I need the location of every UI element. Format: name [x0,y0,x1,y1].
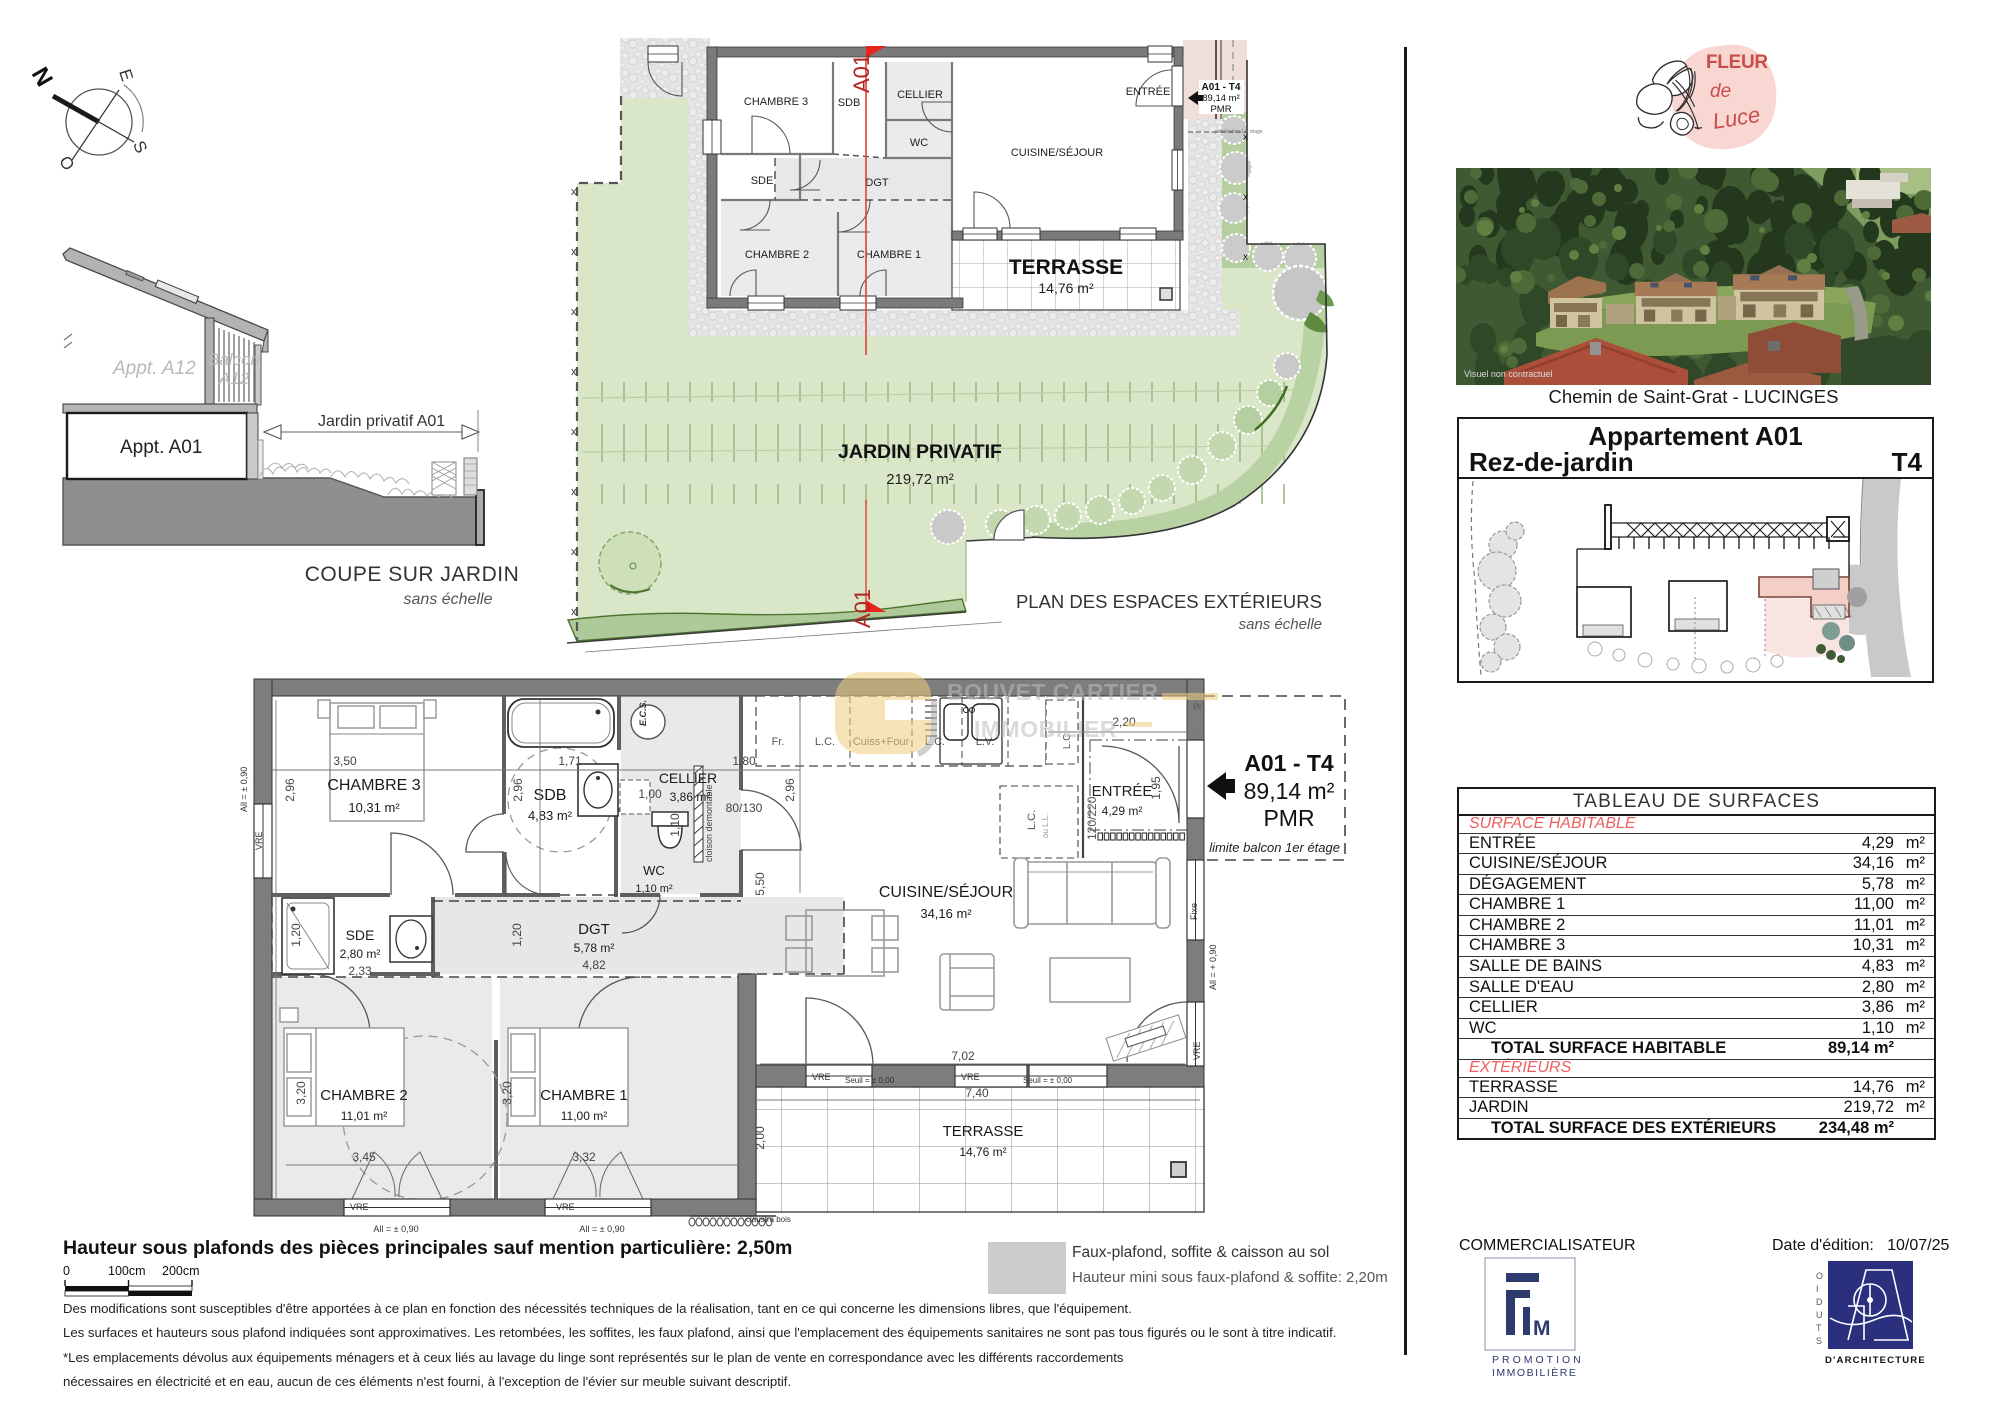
svg-text:1,00: 1,00 [638,787,662,801]
svg-text:N: N [26,63,58,92]
svg-text:ENTRÉE: ENTRÉE [1126,85,1171,98]
svg-text:5,50: 5,50 [753,872,767,896]
svg-text:L.C.: L.C. [1026,810,1038,830]
svg-text:2,96: 2,96 [783,778,797,802]
svg-text:DGT: DGT [865,177,889,189]
svg-text:5,78 m²: 5,78 m² [574,941,615,955]
svg-text:x: x [1243,252,1248,263]
svg-text:CUISINE/SÉJOUR: CUISINE/SÉJOUR [879,882,1013,901]
svg-text:x: x [571,306,577,318]
svg-text:1,10 m²: 1,10 m² [635,883,673,895]
svg-text:80/130: 80/130 [726,801,763,815]
svg-text:VRE: VRE [1192,1041,1202,1060]
svg-text:3,45: 3,45 [352,1150,376,1164]
svg-text:Appt. A01: Appt. A01 [120,437,202,458]
svg-text:All = ± 0,90: All = ± 0,90 [373,1224,418,1234]
svg-text:14,76 m²: 14,76 m² [959,1145,1006,1159]
svg-text:CHAMBRE 1: CHAMBRE 1 [540,1087,628,1104]
svg-text:Appt. A12: Appt. A12 [112,358,196,379]
svg-text:JARDIN PRIVATIF: JARDIN PRIVATIF [838,441,1002,463]
svg-text:A01 - T4: A01 - T4 [1202,82,1241,93]
svg-text:E.C.S.: E.C.S. [638,700,648,726]
svg-text:All = + 0,90: All = + 0,90 [1208,944,1218,990]
svg-text:E: E [115,67,137,84]
svg-text:ou L.L.: ou L.L. [1041,814,1050,838]
svg-text:sans échelle: sans échelle [1239,616,1322,633]
svg-text:4,83 m²: 4,83 m² [528,808,573,823]
svg-text:2,96: 2,96 [283,778,297,802]
svg-text:sans échelle: sans échelle [404,591,493,608]
svg-text:0: 0 [63,1264,70,1278]
svg-text:WC: WC [910,137,928,149]
svg-text:14,76 m²: 14,76 m² [1038,280,1094,296]
svg-text:11,00 m²: 11,00 m² [561,1109,607,1123]
svg-text:SDE: SDE [751,175,774,187]
svg-text:3,86 m²: 3,86 m² [670,790,711,804]
svg-text:2,33: 2,33 [348,964,372,978]
svg-text:3,20: 3,20 [294,1081,308,1105]
svg-text:2,80 m²: 2,80 m² [340,947,381,961]
svg-text:4,82: 4,82 [582,958,606,972]
svg-text:89,14 m²: 89,14 m² [1244,778,1335,804]
svg-text:Balcon: Balcon [208,350,260,369]
svg-text:O: O [1816,1271,1823,1281]
svg-text:CHAMBRE 3: CHAMBRE 3 [744,96,808,108]
svg-text:3,32: 3,32 [572,1150,596,1164]
svg-text:1,80: 1,80 [732,754,756,768]
svg-text:1,20: 1,20 [510,923,524,947]
svg-text:DGT: DGT [578,921,610,938]
svg-text:Fixe: Fixe [1189,903,1199,920]
svg-text:x: x [571,606,577,618]
svg-text:CUISINE/SÉJOUR: CUISINE/SÉJOUR [1011,146,1103,159]
svg-text:3,20: 3,20 [500,1081,514,1105]
svg-text:10,31 m²: 10,31 m² [348,800,400,815]
svg-text:VRE: VRE [556,1202,575,1212]
svg-text:x: x [571,246,577,258]
svg-text:A01: A01 [849,54,874,93]
svg-text:Seuil = ± 0,00: Seuil = ± 0,00 [1023,1076,1073,1085]
svg-text:A01 - T4: A01 - T4 [1244,750,1334,776]
svg-text:219,72 m²: 219,72 m² [886,471,954,488]
svg-text:TERRASSE: TERRASSE [1009,256,1123,279]
svg-text:Seuil = ± 0,00: Seuil = ± 0,00 [845,1076,895,1085]
svg-text:1,10: 1,10 [668,813,682,837]
svg-text:WC: WC [643,863,665,878]
svg-text:L.C.: L.C. [815,736,835,748]
svg-text:x: x [571,486,577,498]
svg-text:CHAMBRE 2: CHAMBRE 2 [320,1087,408,1104]
svg-text:CHAMBRE 3: CHAMBRE 3 [327,777,420,794]
svg-text:PMR: PMR [1263,805,1314,831]
svg-text:All = ± 0,90: All = ± 0,90 [579,1224,624,1234]
svg-text:89,14 m²: 89,14 m² [1202,93,1240,104]
svg-text:x: x [571,186,577,198]
svg-text:COUPE SUR JARDIN: COUPE SUR JARDIN [305,563,520,586]
svg-text:BOUVET CARTIER: BOUVET CARTIER [947,679,1158,705]
svg-text:4,29 m²: 4,29 m² [1102,804,1143,818]
svg-text:SDB: SDB [534,787,567,804]
svg-text:ENTRÉE: ENTRÉE [1092,783,1153,800]
svg-text:CHAMBRE 2: CHAMBRE 2 [745,249,809,261]
svg-text:Jardin privatif A01: Jardin privatif A01 [318,413,445,430]
svg-text:x: x [571,546,577,558]
svg-text:1,20: 1,20 [289,923,303,947]
svg-text:A01: A01 [850,589,875,628]
svg-text:120/220: 120/220 [1085,796,1099,840]
svg-text:IMMOBILIER: IMMOBILIER [974,716,1117,742]
svg-text:SDE: SDE [346,927,375,943]
svg-text:VRE: VRE [961,1072,980,1082]
svg-text:A12: A12 [218,369,250,388]
svg-text:Visuel non contractuel: Visuel non contractuel [1464,369,1552,379]
svg-text:PMR: PMR [1210,104,1231,115]
svg-text:100cm: 100cm [108,1264,146,1278]
svg-text:1,71: 1,71 [558,754,582,768]
svg-text:I: I [1816,1284,1819,1294]
svg-text:Pl: Pl [1193,702,1201,712]
svg-text:de: de [1710,81,1731,102]
svg-text:x: x [571,426,577,438]
svg-text:PLAN DES ESPACES EXTÉRIEURS: PLAN DES ESPACES EXTÉRIEURS [1016,591,1322,612]
svg-text:VRE: VRE [254,831,264,850]
svg-text:7,40: 7,40 [965,1086,989,1100]
svg-text:CELLIER: CELLIER [897,89,943,101]
svg-text:34,16 m²: 34,16 m² [920,906,972,921]
svg-text:x: x [571,366,577,378]
svg-text:200cm: 200cm [162,1264,200,1278]
svg-text:VRE: VRE [350,1202,369,1212]
svg-text:11,01 m²: 11,01 m² [341,1109,387,1123]
svg-text:SDB: SDB [838,97,861,109]
svg-text:x: x [1243,192,1248,203]
svg-text:2,96: 2,96 [511,778,525,802]
svg-text:2,00: 2,00 [753,1126,767,1150]
svg-text:1,95: 1,95 [1149,776,1163,800]
svg-text:TERRASSE: TERRASSE [943,1123,1024,1140]
svg-text:7,02: 7,02 [951,1049,975,1063]
svg-text:All = ± 0,90: All = ± 0,90 [240,767,249,812]
svg-text:3,50: 3,50 [333,754,357,768]
svg-text:FLEUR: FLEUR [1706,52,1768,73]
svg-text:CELLIER: CELLIER [659,770,717,786]
svg-text:VRE: VRE [812,1072,831,1082]
svg-text:Fr.: Fr. [772,736,785,748]
svg-text:limite balcon 1er étage: limite balcon 1er étage [1209,840,1340,855]
